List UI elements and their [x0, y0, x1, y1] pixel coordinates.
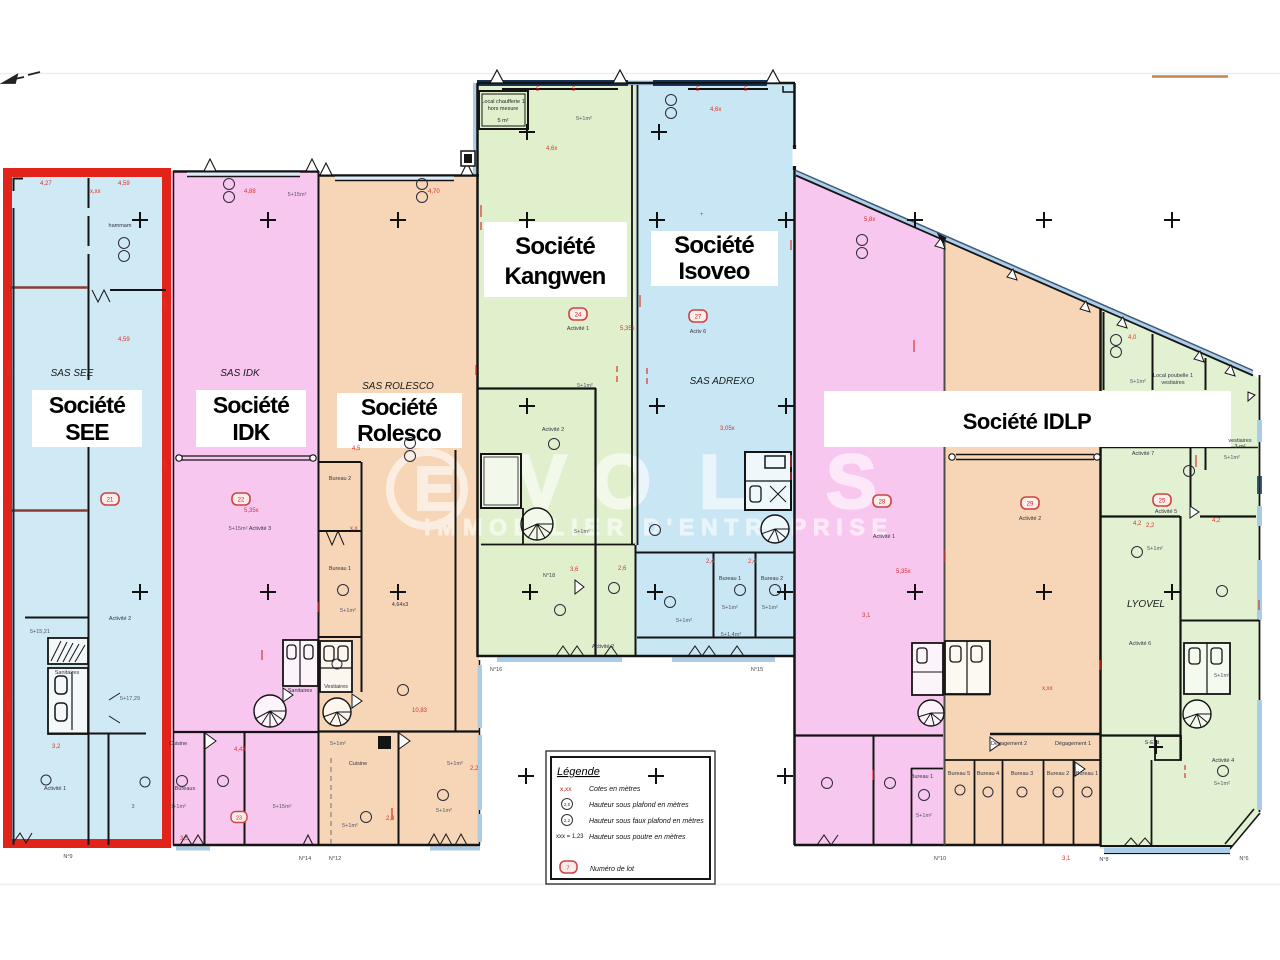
- svg-text:4,27: 4,27: [40, 181, 52, 187]
- svg-text:5+15m²: 5+15m²: [229, 526, 248, 532]
- svg-text:x,x: x,x: [350, 526, 358, 532]
- svg-text:SAS SEE: SAS SEE: [51, 368, 94, 379]
- svg-text:vestiaires: vestiaires: [1161, 380, 1184, 386]
- svg-text:Cuisine: Cuisine: [349, 761, 367, 767]
- svg-text:Société: Société: [515, 233, 595, 260]
- svg-text:5+1,4m²: 5+1,4m²: [721, 632, 741, 638]
- svg-text:4,2: 4,2: [1133, 521, 1142, 527]
- svg-text:4,88: 4,88: [244, 189, 256, 195]
- svg-text:Sanitaires: Sanitaires: [55, 670, 80, 676]
- svg-text:3,05x: 3,05x: [720, 426, 735, 432]
- svg-text:21: 21: [107, 498, 114, 504]
- svg-text:Sanitaires: Sanitaires: [288, 688, 313, 694]
- svg-text:Bureau 1: Bureau 1: [1076, 771, 1098, 777]
- svg-text:2,6: 2,6: [618, 566, 627, 572]
- svg-text:5+1m²: 5+1m²: [722, 605, 738, 611]
- svg-text:N°12: N°12: [329, 856, 341, 862]
- svg-text:x,xx: x,xx: [90, 189, 101, 195]
- svg-text:Bureau 5: Bureau 5: [948, 771, 970, 777]
- svg-text:Numéro de lot: Numéro de lot: [590, 866, 635, 873]
- svg-text:S: S: [826, 440, 877, 525]
- svg-text:L: L: [699, 440, 745, 525]
- svg-text:N°14: N°14: [299, 856, 311, 862]
- svg-text:hors mesure: hors mesure: [488, 106, 519, 112]
- svg-text:4,43: 4,43: [234, 747, 246, 753]
- svg-text:24: 24: [575, 313, 582, 319]
- svg-text:3,2: 3,2: [52, 744, 61, 750]
- svg-text:N°6: N°6: [1239, 856, 1248, 862]
- svg-text:2,4: 2,4: [748, 559, 757, 565]
- svg-text:O: O: [592, 440, 651, 525]
- svg-text:Dégagement 2: Dégagement 2: [991, 741, 1027, 747]
- svg-text:Bureau 1: Bureau 1: [911, 774, 933, 780]
- svg-text:Kangwen: Kangwen: [504, 263, 605, 290]
- svg-text:Société: Société: [213, 392, 289, 418]
- svg-text:Cotes en mètres: Cotes en mètres: [589, 786, 641, 793]
- svg-text:Société IDLP: Société IDLP: [963, 409, 1091, 434]
- svg-text:4,0: 4,0: [1128, 335, 1137, 341]
- svg-text:23: 23: [236, 816, 242, 822]
- svg-text:Société: Société: [49, 392, 125, 418]
- svg-text:Bureau 2: Bureau 2: [761, 576, 783, 582]
- svg-text:IDK: IDK: [232, 419, 270, 445]
- svg-text:Bureau 1: Bureau 1: [719, 576, 741, 582]
- svg-text:Local poubelle 1: Local poubelle 1: [1153, 373, 1193, 379]
- svg-text:5+1m²: 5+1m²: [676, 618, 692, 624]
- svg-text:3,1: 3,1: [862, 613, 871, 619]
- svg-text:5+1m²: 5+1m²: [1214, 781, 1230, 787]
- svg-text:Activité 2: Activité 2: [542, 427, 564, 433]
- svg-text:Bureau 2: Bureau 2: [329, 476, 351, 482]
- svg-text:Bureaux: Bureaux: [175, 786, 196, 792]
- svg-text:Société: Société: [674, 232, 754, 259]
- svg-text:3,5: 3,5: [180, 836, 189, 842]
- svg-text:5+1m²: 5+1m²: [577, 383, 593, 389]
- svg-text:5+1m²: 5+1m²: [574, 529, 590, 535]
- svg-text:Légende: Légende: [557, 766, 600, 778]
- svg-text:5+1m²: 5+1m²: [576, 116, 592, 122]
- svg-text:5+1m²: 5+1m²: [1147, 546, 1163, 552]
- svg-text:5,8x: 5,8x: [864, 217, 875, 223]
- svg-text:5+1m²: 5+1m²: [1224, 455, 1240, 461]
- svg-text:Activité 4: Activité 4: [1212, 758, 1234, 764]
- svg-text:Hauteur sous faux plafond en m: Hauteur sous faux plafond en mètres: [589, 818, 704, 825]
- svg-text:LYOVEL: LYOVEL: [1127, 599, 1165, 610]
- svg-text:Local chaufferie 1: Local chaufferie 1: [481, 99, 524, 105]
- svg-text:xxx = 1,23: xxx = 1,23: [556, 834, 584, 840]
- svg-text:Activité 3: Activité 3: [249, 526, 271, 532]
- svg-text:2,2: 2,2: [1146, 523, 1155, 529]
- svg-text:3,6: 3,6: [570, 567, 579, 573]
- svg-text:4,2: 4,2: [1212, 518, 1221, 524]
- svg-text:Activité 5: Activité 5: [1155, 509, 1177, 515]
- svg-text:5,35x: 5,35x: [896, 569, 911, 575]
- svg-text:5+15m²: 5+15m²: [273, 804, 292, 810]
- svg-text:4,64x3: 4,64x3: [392, 602, 409, 608]
- svg-text:2,8: 2,8: [386, 816, 395, 822]
- svg-text:2,4: 2,4: [706, 559, 715, 565]
- svg-text:Activité 7: Activité 7: [1132, 451, 1154, 457]
- svg-text:Bureau 1: Bureau 1: [329, 566, 351, 572]
- svg-text:4,5: 4,5: [352, 446, 361, 452]
- svg-text:Hauteur sous plafond en mètres: Hauteur sous plafond en mètres: [589, 802, 689, 809]
- svg-text:4,6x: 4,6x: [546, 146, 557, 152]
- svg-text:N°18: N°18: [543, 573, 555, 579]
- svg-text:Activ 6: Activ 6: [690, 329, 707, 335]
- svg-text:Isoveo: Isoveo: [678, 258, 749, 285]
- svg-text:IMMOBILIER D'ENTREPRISE: IMMOBILIER D'ENTREPRISE: [424, 514, 894, 540]
- svg-text:4,70: 4,70: [428, 189, 440, 195]
- svg-text:Activité 2: Activité 2: [1019, 516, 1041, 522]
- svg-text:5+1m²: 5+1m²: [170, 804, 186, 810]
- svg-text:Rolesco: Rolesco: [357, 420, 442, 446]
- svg-text:5+1m²: 5+1m²: [1130, 379, 1146, 385]
- svg-text:Hauteur sous poutre en mètres: Hauteur sous poutre en mètres: [589, 834, 686, 841]
- svg-text:5+1m²: 5+1m²: [916, 813, 932, 819]
- svg-text:4,59: 4,59: [118, 181, 130, 187]
- svg-text:5+1m²: 5+1m²: [330, 741, 346, 747]
- svg-text:N°10: N°10: [934, 856, 946, 862]
- svg-text:2,5: 2,5: [564, 802, 571, 807]
- svg-text:22: 22: [238, 498, 245, 504]
- svg-text:x,xx: x,xx: [1042, 686, 1053, 692]
- svg-text:Vestiaires: Vestiaires: [324, 684, 348, 690]
- svg-text:SAS IDK: SAS IDK: [220, 368, 261, 379]
- svg-text:7: 7: [566, 866, 569, 872]
- svg-text:5+1m²: 5+1m²: [342, 823, 358, 829]
- svg-text:Société: Société: [361, 394, 437, 420]
- svg-text:28: 28: [879, 500, 886, 506]
- svg-text:4,6x: 4,6x: [710, 107, 721, 113]
- svg-text:Activité 2: Activité 2: [109, 616, 131, 622]
- svg-text:5+1m²: 5+1m²: [1214, 673, 1230, 679]
- svg-text:4,59: 4,59: [118, 337, 130, 343]
- svg-text:+: +: [700, 212, 704, 218]
- svg-text:5+1m²: 5+1m²: [762, 605, 778, 611]
- svg-text:2,2: 2,2: [470, 766, 479, 772]
- svg-text:Dégagement 1: Dégagement 1: [1055, 741, 1091, 747]
- svg-text:SAS ROLESCO: SAS ROLESCO: [362, 381, 434, 392]
- svg-text:Cuisine: Cuisine: [169, 741, 187, 747]
- svg-text:10,83: 10,83: [412, 708, 428, 714]
- svg-text:SEE: SEE: [65, 419, 109, 445]
- svg-text:Activité 6: Activité 6: [1129, 641, 1151, 647]
- svg-text:S-Exit: S-Exit: [1145, 740, 1160, 746]
- svg-text:Activité 2: Activité 2: [592, 644, 614, 650]
- svg-text:Activité 1: Activité 1: [567, 326, 589, 332]
- svg-text:N°16: N°16: [490, 667, 502, 673]
- svg-text:5+15m²: 5+15m²: [288, 192, 307, 198]
- svg-text:27: 27: [695, 315, 702, 321]
- svg-text:hammam: hammam: [109, 223, 132, 229]
- svg-text:5+1m²: 5+1m²: [447, 761, 463, 767]
- svg-text:SAS ADREXO: SAS ADREXO: [690, 376, 755, 387]
- svg-text:5 m²: 5 m²: [498, 118, 509, 124]
- svg-text:N°8: N°8: [1099, 857, 1108, 863]
- svg-text:5+1m²: 5+1m²: [340, 608, 356, 614]
- svg-text:Activité 1: Activité 1: [873, 534, 895, 540]
- svg-text:5+1m²: 5+1m²: [436, 808, 452, 814]
- svg-text:N°15: N°15: [751, 667, 763, 673]
- svg-text:x,xx: x,xx: [560, 786, 572, 793]
- svg-text:2,2: 2,2: [564, 818, 571, 823]
- svg-text:29: 29: [1027, 502, 1034, 508]
- svg-text:3 m²: 3 m²: [1235, 444, 1246, 450]
- svg-text:5,35x: 5,35x: [244, 508, 259, 514]
- svg-text:5,35x: 5,35x: [620, 326, 635, 332]
- svg-text:Bureau 3: Bureau 3: [1011, 771, 1033, 777]
- svg-text:5+17,29: 5+17,29: [120, 696, 140, 702]
- svg-text:3,1: 3,1: [1062, 856, 1071, 862]
- svg-text:Activité 1: Activité 1: [44, 786, 66, 792]
- svg-text:3: 3: [131, 804, 134, 810]
- svg-text:N°9: N°9: [63, 854, 72, 860]
- svg-text:Bureau 2: Bureau 2: [1047, 771, 1069, 777]
- svg-text:25: 25: [1159, 499, 1166, 505]
- svg-text:Bureau 4: Bureau 4: [977, 771, 999, 777]
- svg-text:5+15,21: 5+15,21: [30, 629, 50, 635]
